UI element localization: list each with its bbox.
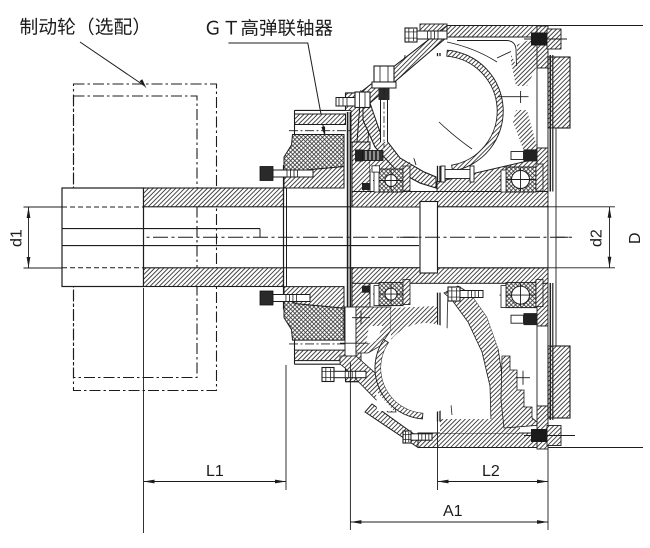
svg-text:d1: d1 <box>9 229 26 247</box>
svg-text:d2: d2 <box>589 229 606 247</box>
svg-text:A1: A1 <box>443 503 463 520</box>
svg-text:L1: L1 <box>206 463 224 480</box>
svg-text:D: D <box>627 232 644 244</box>
svg-text:L2: L2 <box>482 463 500 480</box>
